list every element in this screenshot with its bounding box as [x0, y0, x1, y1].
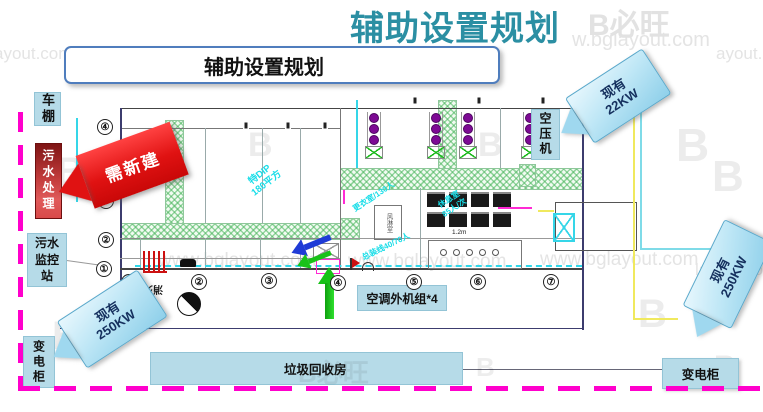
machine-column [429, 112, 443, 146]
car-symbol [180, 259, 196, 267]
brand-logo-ghost: B [478, 126, 503, 165]
service-line-magenta [498, 207, 532, 209]
table-seat [453, 249, 460, 256]
grid-bubble: ① [96, 261, 112, 277]
existing-250kw-left-callout: 现有 250KW [41, 274, 165, 377]
plan-partition [205, 128, 206, 223]
grid-bubble: ④ [330, 275, 346, 291]
transformer-right-box: 变电柜 [662, 358, 739, 389]
machine-column [461, 112, 475, 146]
plan-partition [500, 108, 501, 168]
service-line-yellow [633, 110, 635, 320]
grid-bubble: ② [191, 274, 207, 290]
equipment-block [493, 192, 511, 207]
equipment-symbol [459, 146, 477, 159]
grid-bubble: ⑥ [470, 274, 486, 290]
service-line-yellow [538, 210, 554, 212]
transformer-right-label: 变电柜 [682, 364, 720, 383]
sewage-monitor-box: 污水监控站 [27, 233, 67, 287]
arc-symbol [362, 262, 374, 271]
table-seat [466, 249, 473, 256]
plan-wall-top [120, 108, 582, 109]
brand-logo-ghost: B [676, 118, 709, 172]
door-mark [476, 96, 482, 105]
plan-wall-divider [340, 108, 341, 268]
door-mark [412, 96, 418, 105]
equipment-block [471, 192, 489, 207]
site-boundary-bottom [18, 386, 763, 391]
grid-bubble: ⑦ [543, 274, 559, 290]
ac-units-box: 空调外机组*4 [357, 285, 447, 311]
door-mark [322, 121, 328, 130]
north-symbol [177, 292, 201, 316]
table-seat [479, 249, 486, 256]
leader-line [62, 259, 100, 265]
plan-partition [420, 188, 421, 268]
need-new-label: 需新建 [101, 144, 163, 187]
plan-partition [205, 238, 206, 268]
dimension-label: 1.2m [452, 229, 466, 236]
table-seat [440, 249, 447, 256]
grid-bubble: ④ [97, 119, 113, 135]
service-line-magenta [343, 190, 345, 204]
hatch-band-horizontal [340, 168, 584, 190]
brand-logo-ghost: B [638, 292, 667, 337]
watermark-url: ayout.co [716, 44, 763, 64]
hatch-band-connector [340, 218, 360, 240]
plan-partition [260, 238, 261, 268]
plan-partition [300, 128, 301, 223]
brand-logo-ghost: B必旺 [588, 0, 670, 44]
brand-logo-ghost: B必旺 [298, 353, 369, 390]
air-shower-label: 风淋室 [383, 213, 393, 233]
flag-symbol [352, 258, 360, 268]
brand-logo-ghost: B [712, 152, 744, 202]
existing-22kw-callout: 现有 22KW [549, 53, 669, 152]
service-line-cyan [640, 110, 642, 250]
damper-symbol [553, 213, 575, 242]
ac-units-label: 空调外机组*4 [366, 290, 437, 307]
transformer-left-label: 变电柜 [31, 340, 48, 385]
dip-area-label: 特DIP 180平方 [243, 160, 284, 199]
section-title-box: 辅助设置规划 [64, 46, 500, 84]
page-title: 辅助设置规划 [350, 1, 600, 50]
grid-bubble: ② [98, 232, 114, 248]
service-line-yellow [633, 318, 678, 320]
grid-bubble: ⑤ [406, 274, 422, 290]
equipment-symbol [365, 146, 383, 159]
slide-canvas: ayout.com www.bglayout.com www.bglayout.… [0, 0, 763, 412]
brand-logo-ghost: B [476, 352, 495, 383]
plan-partition [140, 238, 141, 268]
carport-label: 车棚 [38, 93, 57, 125]
door-mark [540, 96, 546, 105]
door-mark [285, 121, 291, 130]
machine-column [367, 112, 381, 146]
service-line-cyan [356, 100, 358, 168]
section-title: 辅助设置规划 [204, 51, 324, 80]
hatch-patch [519, 164, 536, 187]
watermark-url: ayout.com [0, 44, 72, 64]
equipment-block [471, 212, 489, 227]
sewage-monitor-label: 污水监控站 [33, 235, 61, 285]
equipment-symbol [427, 146, 445, 159]
grid-bubble: ③ [261, 273, 277, 289]
fire-rack-symbol [143, 251, 167, 273]
site-boundary-left [18, 112, 23, 390]
carport-label-box: 车棚 [34, 92, 61, 126]
equipment-block [493, 212, 511, 227]
door-mark [243, 121, 249, 130]
table-seat [492, 249, 499, 256]
existing-250kw-right-callout: 现有 250KW [677, 221, 763, 346]
